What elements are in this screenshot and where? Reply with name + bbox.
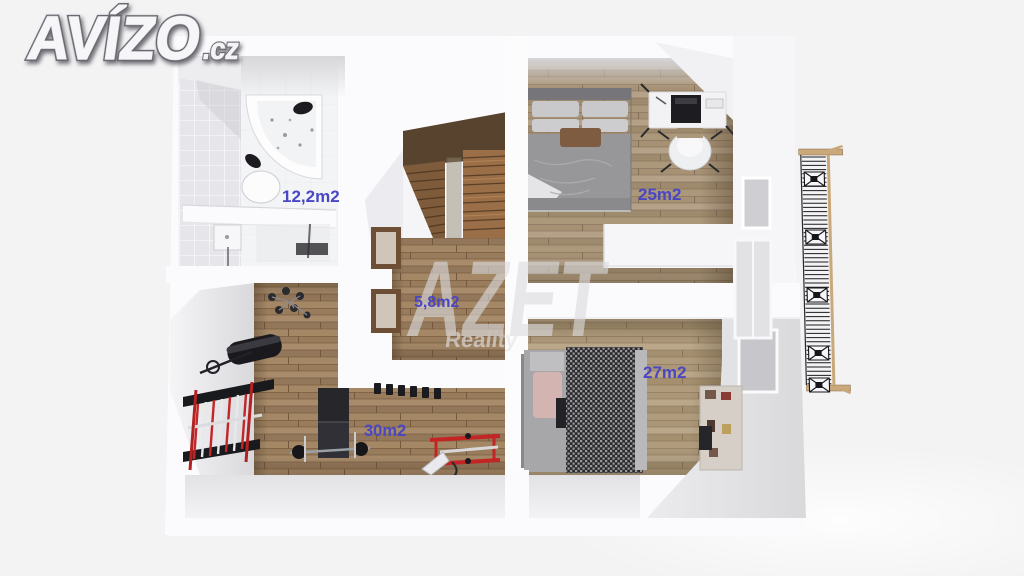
svg-text:27m2: 27m2 [643, 363, 686, 382]
svg-text:.cz: .cz [201, 33, 242, 66]
svg-text:Reality: Reality [444, 327, 520, 352]
svg-text:30m2: 30m2 [364, 422, 406, 440]
svg-text:5,8m2: 5,8m2 [414, 294, 459, 311]
svg-text:12,2m2: 12,2m2 [282, 187, 340, 206]
svg-text:AVÍZO: AVÍZO [24, 4, 206, 72]
svg-text:25m2: 25m2 [638, 185, 681, 204]
